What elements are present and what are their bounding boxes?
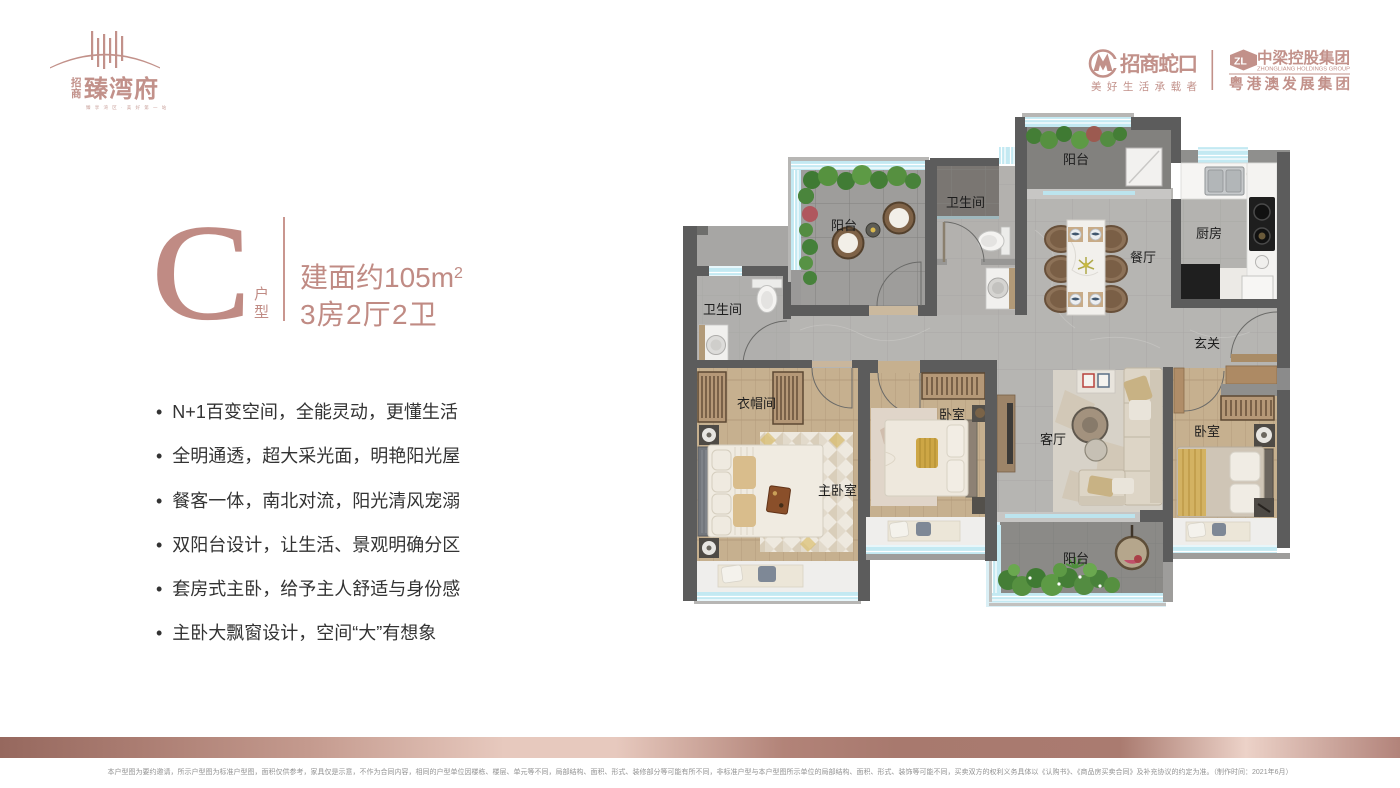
svg-text:卧室: 卧室 — [1194, 424, 1220, 439]
svg-text:美好生活承载者: 美好生活承载者 — [1091, 80, 1197, 93]
svg-text:阳台: 阳台 — [831, 218, 857, 233]
svg-text:玄关: 玄关 — [1194, 336, 1220, 351]
svg-text:ZHONGLIANG HOLDINGS GROUP: ZHONGLIANG HOLDINGS GROUP — [1257, 67, 1350, 73]
svg-text:主卧室: 主卧室 — [818, 483, 857, 498]
svg-text:阳台: 阳台 — [1063, 551, 1089, 566]
svg-text:ZL: ZL — [1234, 56, 1247, 68]
svg-text:阳台: 阳台 — [1063, 152, 1089, 167]
svg-text:中梁控股集团: 中梁控股集团 — [1257, 48, 1350, 67]
svg-text:卧室: 卧室 — [939, 407, 965, 422]
svg-text:商: 商 — [71, 87, 82, 100]
svg-text:臻 享 湾 区 · 美 好 第 一 站: 臻 享 湾 区 · 美 好 第 一 站 — [86, 104, 168, 111]
svg-text:厨房: 厨房 — [1196, 226, 1222, 241]
svg-text:臻湾府: 臻湾府 — [84, 75, 159, 103]
svg-text:招商蛇口: 招商蛇口 — [1120, 52, 1198, 76]
svg-text:卫生间: 卫生间 — [946, 195, 985, 210]
svg-text:客厅: 客厅 — [1040, 432, 1066, 447]
svg-text:卫生间: 卫生间 — [703, 302, 742, 317]
svg-text:粤港澳发展集团: 粤港澳发展集团 — [1229, 75, 1350, 93]
svg-text:餐厅: 餐厅 — [1130, 250, 1156, 265]
svg-text:衣帽间: 衣帽间 — [737, 396, 776, 411]
